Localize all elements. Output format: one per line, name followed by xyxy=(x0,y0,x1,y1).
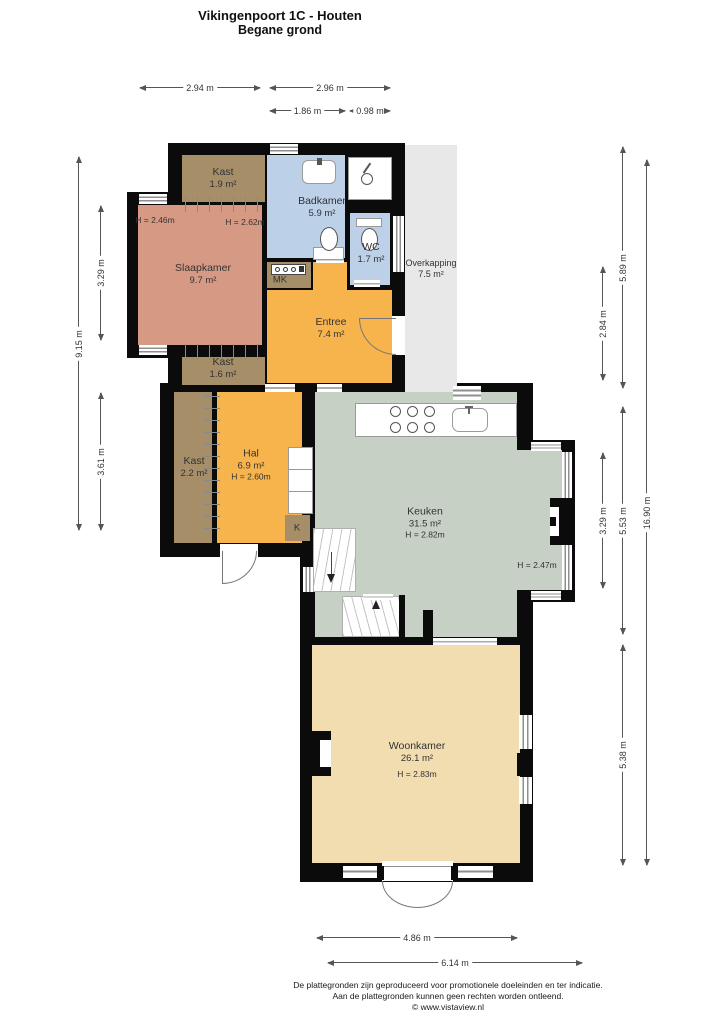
kitchen-sink-icon xyxy=(452,408,488,432)
hal-cabinet-1 xyxy=(288,447,313,470)
window-sill-woonkamer-right xyxy=(453,866,493,878)
label-mk: MK xyxy=(273,275,287,286)
label-height-247: H = 2.47m xyxy=(517,560,556,570)
stove-burner-4 xyxy=(390,422,401,433)
stove-burner-1 xyxy=(390,406,401,417)
wall-keuken-pillar xyxy=(423,610,433,638)
window-slaapkamer-top xyxy=(139,194,167,204)
dim-left-3: 3.61 m xyxy=(100,393,101,530)
wall-stairs-pillar xyxy=(399,595,405,640)
patio-door-arc-left-icon xyxy=(382,881,418,908)
floor-plan-canvas: Vikingenpoort 1C - Houten Begane grond xyxy=(0,0,724,1024)
footer-line2: Aan de plattegronden kunnen geen rechten… xyxy=(170,991,724,1002)
dim-bottom-1: 4.86 m xyxy=(317,937,517,938)
threshold-entree-hal xyxy=(265,384,295,392)
window-wc-east xyxy=(393,216,404,272)
footer-copyright: © www.vistaview.nl xyxy=(170,1002,724,1013)
threshold-wc-door xyxy=(354,280,380,287)
dim-right-553: 5.53 m xyxy=(622,407,623,634)
wardrobe-ticks-kast-boven xyxy=(185,196,260,212)
shower-drain-icon xyxy=(361,173,373,185)
patio-door-line xyxy=(382,866,453,867)
title-line1: Vikingenpoort 1C - Houten xyxy=(130,8,430,23)
sink-tap-icon xyxy=(317,158,322,165)
stove-burner-3 xyxy=(424,406,435,417)
dim-left-1: 9.15 m xyxy=(78,157,79,530)
window-bay-bottom xyxy=(531,591,561,600)
dim-right-329: 3.29 m xyxy=(602,453,603,588)
dim-top-3: 1.86 m xyxy=(270,110,345,111)
window-woonkamer-east-1 xyxy=(519,715,532,749)
kitchen-tap-bar xyxy=(465,406,473,408)
threshold-keuken-woonkamer xyxy=(433,638,497,645)
woonkamer-chimney-notch xyxy=(320,740,331,767)
stove-burner-6 xyxy=(424,422,435,433)
window-stairs-west xyxy=(303,567,313,592)
dim-bottom-2: 6.14 m xyxy=(328,962,582,963)
label-height-246: H = 2.46m xyxy=(135,215,174,225)
hal-cabinet-3 xyxy=(288,491,313,514)
fusebox-switch xyxy=(299,266,304,272)
fusebox-dial-1 xyxy=(275,267,280,272)
threshold-entree-keuken xyxy=(317,384,342,392)
label-height-262: H = 2.62m xyxy=(225,217,264,227)
dim-top-2: 2.96 m xyxy=(270,87,390,88)
front-door-arc-icon xyxy=(222,551,257,584)
patio-door-opening xyxy=(382,861,453,881)
label-slaapkamer: Slaapkamer 9.7 m² xyxy=(175,262,231,286)
window-keuken-north xyxy=(453,386,481,400)
dim-right-589: 5.89 m xyxy=(622,147,623,388)
label-kast-hal: Kast 2.2 m² xyxy=(181,455,208,479)
stairs-lower-flight-icon xyxy=(342,596,400,637)
room-entree-strip xyxy=(313,262,347,290)
dim-right-538: 5.38 m xyxy=(622,645,623,865)
window-woonkamer-east-2 xyxy=(519,777,532,804)
patio-door-jamb-left xyxy=(377,866,384,880)
stove-burner-5 xyxy=(407,422,418,433)
dim-right-1690: 16.90 m xyxy=(646,160,647,865)
stairs-arrow-stem xyxy=(331,552,332,574)
label-entree: Entree 7.4 m² xyxy=(316,316,347,340)
label-badkamer: Badkamer 5.9 m² xyxy=(298,195,346,219)
wc-cistern-icon xyxy=(356,218,382,227)
stairs-down-arrow-icon xyxy=(327,574,335,583)
window-top-wall xyxy=(270,144,298,154)
patio-door-jamb-right xyxy=(451,866,458,880)
label-kast-midden: Kast 1.6 m² xyxy=(210,356,237,380)
stairs-threshold xyxy=(363,594,393,600)
label-k: K xyxy=(294,523,300,534)
stove-burner-2 xyxy=(407,406,418,417)
woonkamer-wall-bump xyxy=(517,753,533,776)
window-bay-east-1 xyxy=(562,452,572,498)
window-slaapkamer-bottom xyxy=(139,345,167,355)
window-bay-top xyxy=(531,442,561,451)
toilet-bowl-icon xyxy=(320,227,338,251)
label-woonkamer: Woonkamer 26.1 m² H = 2.83m xyxy=(389,740,445,780)
dim-top-1: 2.94 m xyxy=(140,87,260,88)
hal-cabinet-2 xyxy=(288,469,313,492)
dim-right-284: 2.84 m xyxy=(602,267,603,380)
footer-line1: De plattegronden zijn geproduceerd voor … xyxy=(170,980,724,991)
dim-left-2: 3.29 m xyxy=(100,206,101,340)
label-wc: WC 1.7 m² xyxy=(358,241,385,265)
fusebox-dial-3 xyxy=(291,267,296,272)
plan-title: Vikingenpoort 1C - Houten Begane grond xyxy=(130,8,430,37)
title-line2: Begane grond xyxy=(130,23,430,37)
label-kast-boven: Kast 1.9 m² xyxy=(210,166,237,190)
stairs-up-arrow-icon xyxy=(372,600,380,609)
fusebox-dial-2 xyxy=(283,267,288,272)
patio-door-arc-right-icon xyxy=(417,881,453,908)
footer-disclaimer: De plattegronden zijn geproduceerd voor … xyxy=(170,980,724,1013)
label-overkapping: Overkapping 7.5 m² xyxy=(405,258,456,280)
label-hal: Hal 6.9 m² H = 2.60m xyxy=(231,448,270,483)
window-bay-east-2 xyxy=(562,544,572,590)
dim-top-4: 0.98 m xyxy=(350,110,390,111)
label-keuken: Keuken 31.5 m² H = 2.82m xyxy=(405,506,444,541)
bay-chimney-tab xyxy=(550,517,556,526)
kitchen-counter xyxy=(355,403,517,437)
